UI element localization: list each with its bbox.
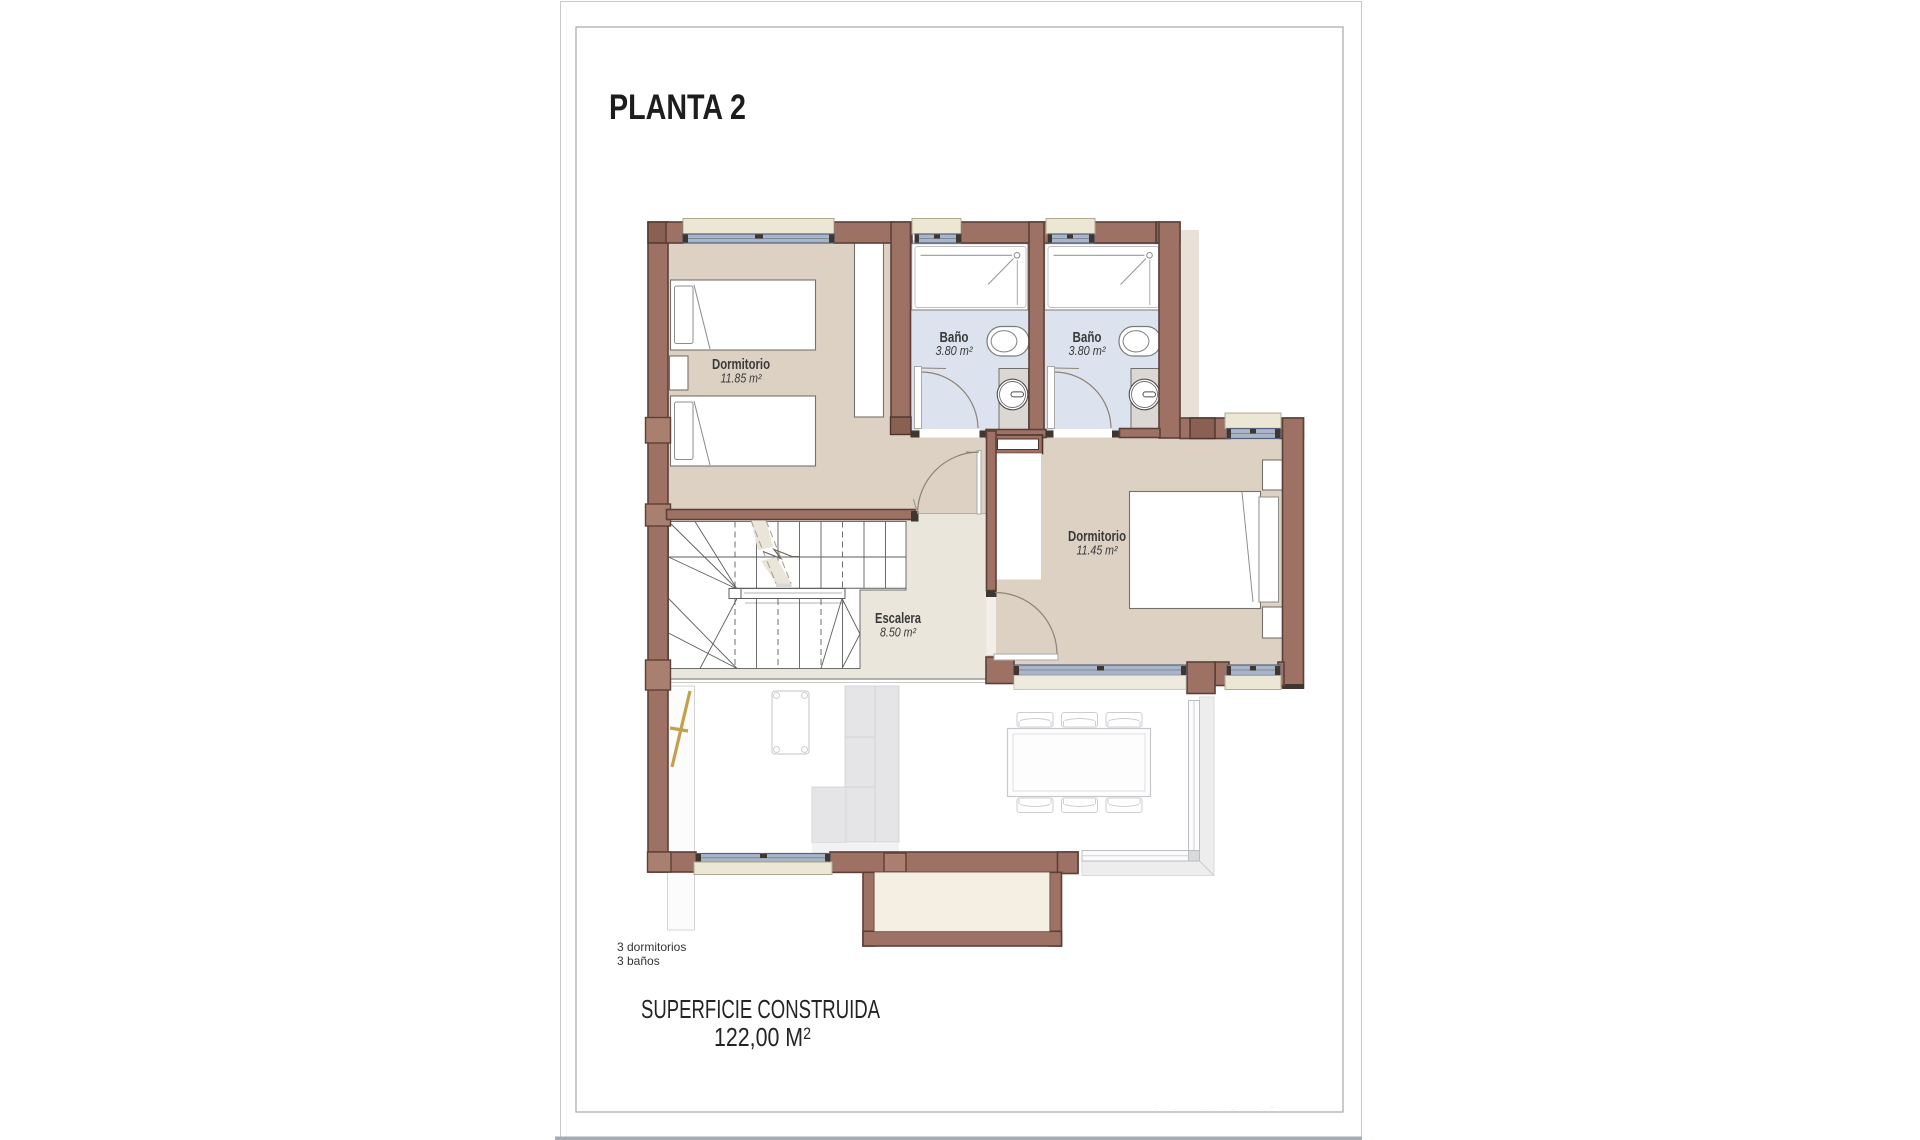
svg-text:3 dormitorios: 3 dormitorios xyxy=(617,940,686,954)
svg-text:SUPERFICIE CONSTRUIDA: SUPERFICIE CONSTRUIDA xyxy=(641,996,880,1024)
svg-text:8.50 m²: 8.50 m² xyxy=(880,626,917,640)
svg-text:3.80 m²: 3.80 m² xyxy=(1069,344,1107,358)
svg-text:122,00 M2: 122,00 M2 xyxy=(714,1024,811,1052)
svg-text:. _ . _ _ . _ . . _ _ . ~: . _ . _ _ . _ . . _ _ . ~ xyxy=(1155,1103,1276,1112)
svg-text:11.45 m²: 11.45 m² xyxy=(1077,544,1119,558)
svg-text:3 baños: 3 baños xyxy=(617,954,660,968)
svg-text:PLANTA 2: PLANTA 2 xyxy=(609,88,746,127)
svg-text:3.80 m²: 3.80 m² xyxy=(936,344,974,358)
svg-text:11.85 m²: 11.85 m² xyxy=(721,372,763,386)
